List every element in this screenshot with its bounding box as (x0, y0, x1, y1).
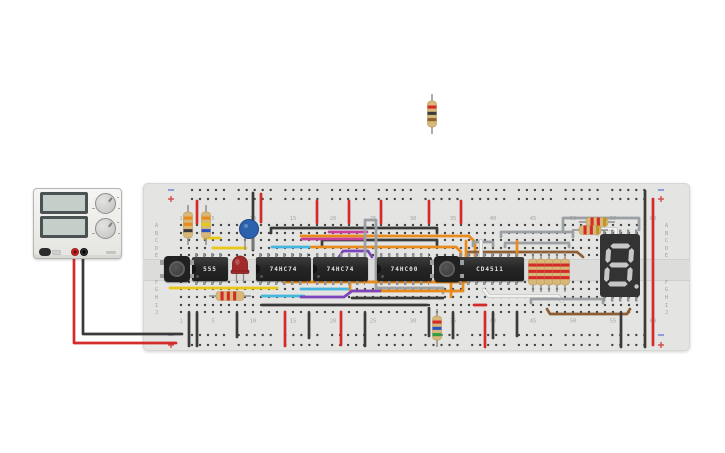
ic-notch (377, 265, 381, 274)
psu-negative-terminal[interactable] (80, 248, 88, 256)
svg-text:D: D (665, 246, 668, 252)
ic-label: 74HC00 (391, 266, 419, 273)
svg-text:40: 40 (490, 216, 497, 222)
resistor[interactable] (184, 205, 193, 245)
button-cap[interactable] (434, 256, 460, 282)
ic-label: 555 (203, 266, 217, 273)
pushbutton-2[interactable] (434, 256, 460, 282)
svg-text:B: B (155, 231, 159, 237)
power-supply[interactable] (33, 188, 122, 259)
resistor[interactable] (433, 309, 442, 347)
ic-74hc74-1[interactable]: 74HC74 (256, 257, 311, 281)
seven-segment-display[interactable] (600, 230, 640, 302)
ic-notch (256, 265, 260, 274)
psu-positive-terminal[interactable] (71, 248, 79, 256)
psu-current-knob[interactable] (95, 218, 116, 239)
ic-555[interactable]: 555 (192, 257, 228, 281)
svg-text:15: 15 (290, 216, 297, 222)
psu-logo (106, 251, 116, 254)
svg-text:10: 10 (250, 319, 257, 325)
ic-notch (313, 265, 317, 274)
resistor[interactable] (537, 252, 546, 292)
wire-gray[interactable] (505, 243, 569, 247)
circuit-canvas: 1155101015152020252530303535404045455050… (0, 0, 725, 453)
svg-text:C: C (155, 238, 158, 244)
wire-gray[interactable] (501, 232, 573, 237)
svg-text:C: C (665, 238, 668, 244)
ic-label: CD4511 (476, 266, 504, 273)
resistor[interactable] (561, 252, 570, 292)
svg-text:15: 15 (290, 319, 297, 325)
svg-text:1: 1 (179, 216, 182, 222)
svg-text:B: B (665, 231, 669, 237)
svg-text:30: 30 (410, 319, 417, 325)
svg-text:D: D (155, 246, 158, 252)
resistor[interactable] (209, 292, 251, 301)
led[interactable] (231, 256, 249, 283)
svg-text:E: E (665, 253, 668, 259)
resistor[interactable] (545, 252, 554, 292)
svg-text:55: 55 (610, 319, 617, 325)
ic-cd4511[interactable]: CD4511 (456, 257, 524, 281)
svg-text:45: 45 (530, 319, 537, 325)
svg-text:5: 5 (211, 319, 214, 325)
capacitor[interactable] (240, 220, 259, 251)
svg-text:H: H (155, 295, 158, 301)
ic-74hc00[interactable]: 74HC00 (377, 257, 432, 281)
wire-gray[interactable] (531, 299, 603, 303)
svg-text:F: F (155, 280, 158, 286)
ic-label: 74HC74 (270, 266, 298, 273)
ic-notch (192, 265, 196, 274)
svg-text:20: 20 (330, 319, 337, 325)
ic-pin1-dot (381, 275, 384, 278)
svg-text:45: 45 (530, 216, 537, 222)
pushbutton-1[interactable] (164, 256, 190, 282)
svg-text:H: H (665, 295, 668, 301)
svg-text:35: 35 (450, 216, 457, 222)
resistor[interactable] (572, 226, 608, 235)
svg-text:50: 50 (570, 319, 577, 325)
psu-voltage-knob[interactable] (95, 193, 116, 214)
ic-pin1-dot (196, 275, 199, 278)
svg-text:30: 30 (410, 216, 417, 222)
svg-text:A: A (155, 223, 159, 229)
psu-power-button[interactable] (39, 248, 51, 256)
ic-pin1-dot (317, 275, 320, 278)
psu-voltage-display (40, 192, 88, 214)
wire-black[interactable] (322, 240, 437, 245)
wire-red[interactable] (74, 251, 176, 343)
svg-text:5: 5 (211, 216, 214, 222)
svg-text:G: G (665, 287, 668, 293)
svg-text:G: G (155, 287, 158, 293)
ic-pin1-dot (260, 275, 263, 278)
psu-current-display (40, 216, 88, 238)
wire-purple[interactable] (301, 291, 380, 297)
resistor[interactable] (428, 94, 437, 134)
svg-text:J: J (665, 310, 668, 316)
svg-text:F: F (665, 280, 668, 286)
svg-text:1: 1 (179, 319, 182, 325)
ic-label: 74HC74 (327, 266, 355, 273)
svg-text:25: 25 (370, 319, 377, 325)
button-cap[interactable] (164, 256, 190, 282)
svg-text:I: I (155, 303, 158, 309)
svg-text:A: A (665, 223, 669, 229)
svg-text:J: J (155, 310, 158, 316)
svg-text:20: 20 (330, 216, 337, 222)
resistor[interactable] (553, 252, 562, 292)
resistor[interactable] (529, 252, 538, 292)
ic-74hc74-2[interactable]: 74HC74 (313, 257, 368, 281)
svg-text:I: I (665, 303, 668, 309)
svg-text:E: E (155, 253, 158, 259)
